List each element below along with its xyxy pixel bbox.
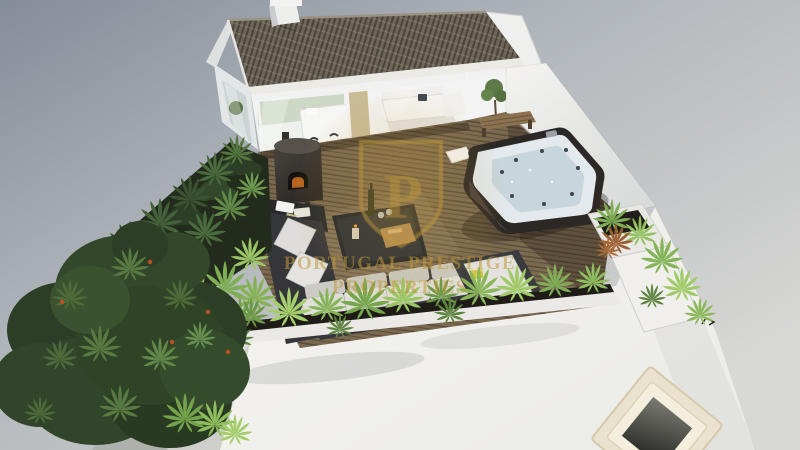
wine-glass — [378, 212, 384, 218]
candle-flame — [354, 224, 357, 227]
oven-fire-glow — [292, 177, 304, 188]
wine-glass-2 — [386, 209, 392, 215]
rooftop-terrace-render: P PORTUGAL PRESTIGE PROPERTIES — [0, 0, 800, 450]
scene-canvas — [0, 0, 800, 450]
dark-pillow — [418, 94, 427, 101]
wine-bottle — [368, 190, 374, 216]
bed-pillow — [306, 108, 318, 115]
candle — [352, 228, 359, 239]
oven-dome — [274, 138, 320, 154]
